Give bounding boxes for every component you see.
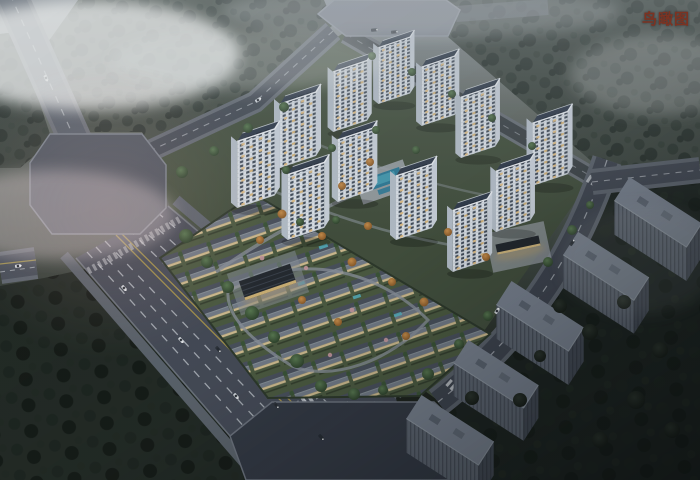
aerial-render-scene xyxy=(0,0,700,480)
view-title-label: 鸟瞰图 xyxy=(642,8,690,29)
vignette xyxy=(0,0,700,480)
aerial-render-image: 鸟瞰图 xyxy=(0,0,700,480)
